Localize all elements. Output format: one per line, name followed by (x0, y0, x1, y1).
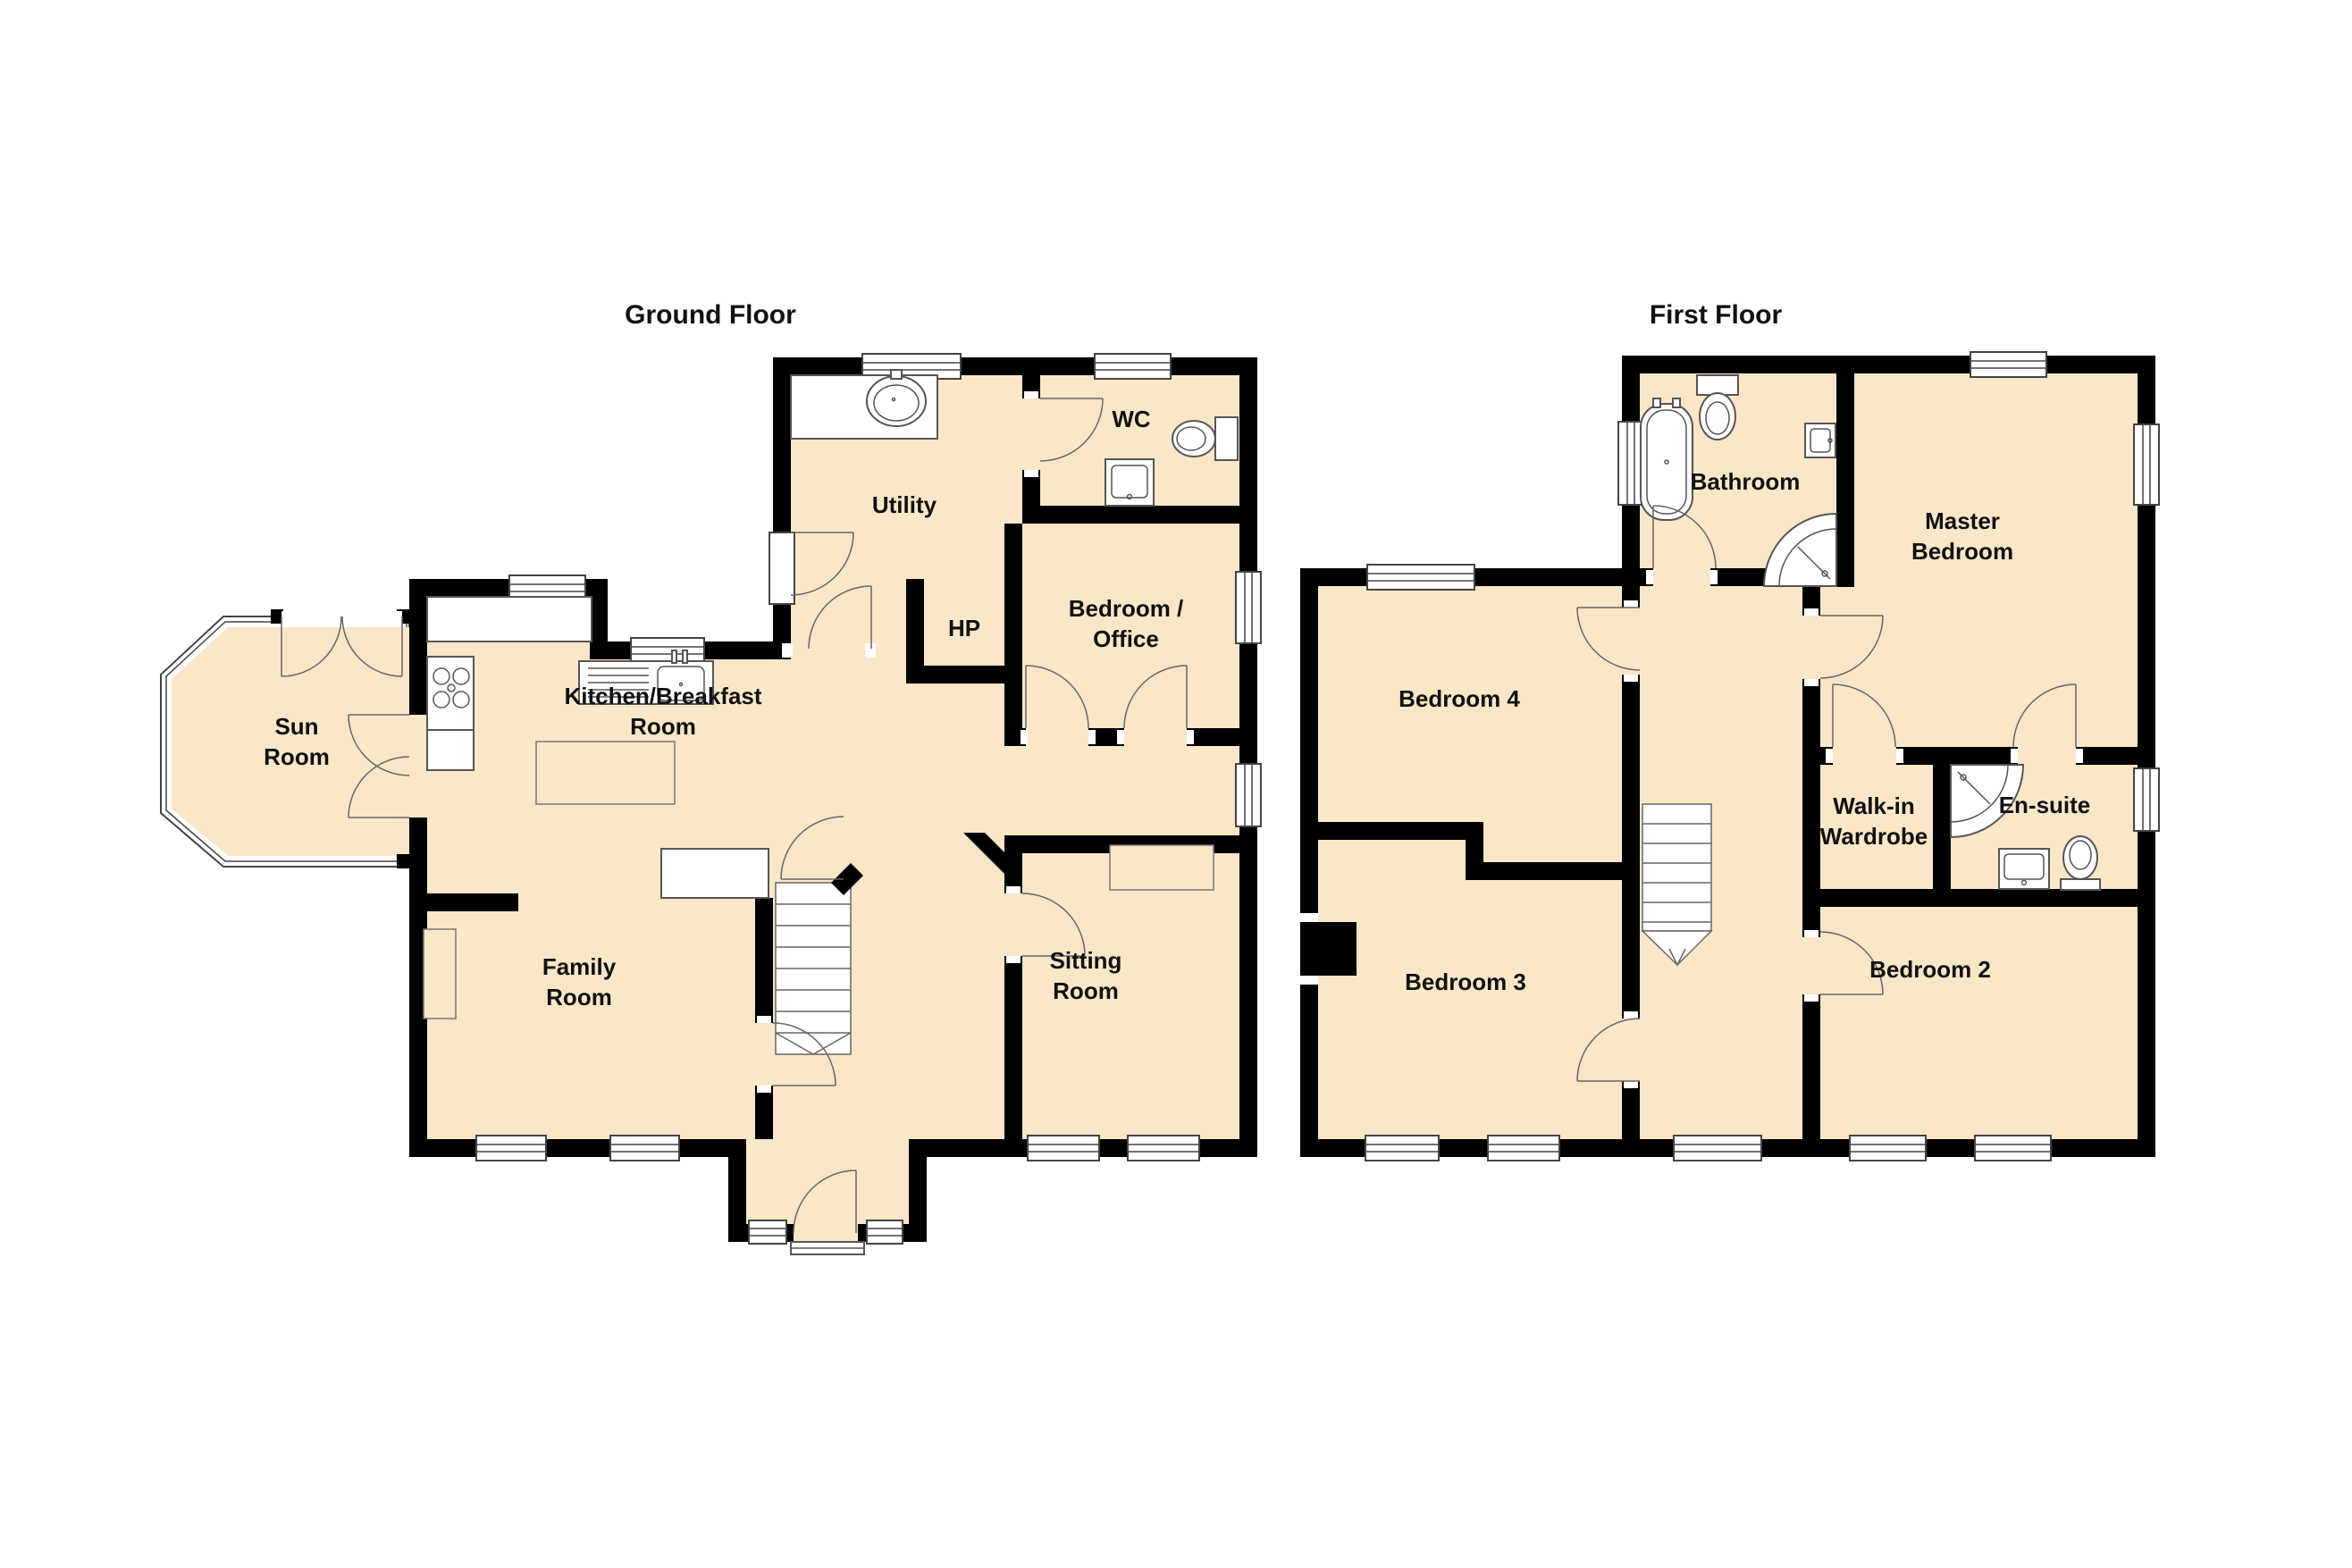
kitchen-peninsula (661, 849, 769, 898)
sitting-room-label: Room (1053, 977, 1119, 1004)
window (1975, 1136, 2051, 1161)
family-room-label: Room (546, 984, 612, 1010)
fireplace (1110, 845, 1214, 890)
kitchen-island (536, 742, 675, 804)
chimney-breast (424, 929, 456, 1019)
floorplan-page: Ground Floor (0, 0, 2352, 1568)
chimney-breast (1300, 913, 1357, 985)
walk-in-wardrobe-label: Wardrobe (1820, 823, 1928, 850)
en-suite-label: En-suite (1999, 792, 2091, 818)
en-suite-toilet-icon (2061, 836, 2100, 890)
front-door-step (791, 1242, 864, 1254)
window (1367, 565, 1474, 590)
kitchen-counter (427, 597, 592, 641)
wc-label: WC (1112, 406, 1151, 432)
window (2134, 768, 2159, 831)
master-bedroom-label: Master (1925, 507, 2000, 534)
bathtub-icon (1641, 398, 1693, 520)
en-suite-basin-icon (1999, 849, 2049, 889)
window (749, 1220, 786, 1244)
wc-toilet-icon (1172, 417, 1238, 460)
master-bedroom-label: Bedroom (1911, 538, 2013, 565)
window (1095, 354, 1171, 379)
window (1128, 1136, 1199, 1161)
floor-plan-image: Ground Floor (0, 0, 2352, 1568)
staircase (1642, 804, 1711, 965)
family-room-label: Family (542, 953, 617, 980)
window (1236, 572, 1261, 643)
wash-basin-icon (1805, 423, 1835, 457)
window (1028, 1136, 1099, 1161)
staircase (776, 883, 851, 1054)
wc-basin-icon (1105, 459, 1154, 506)
utility-label: Utility (872, 491, 937, 518)
window (476, 1136, 546, 1161)
window (1236, 764, 1261, 826)
bedroom-3-label: Bedroom 3 (1405, 968, 1526, 995)
bedroom-4-label: Bedroom 4 (1399, 685, 1520, 712)
window (1970, 352, 2046, 377)
bathroom-label: Bathroom (1691, 468, 1801, 495)
kitchen-label: Room (630, 713, 696, 740)
sun-room-label: Room (264, 743, 330, 770)
window (1488, 1136, 1559, 1161)
sun-room-label: Sun (274, 713, 318, 740)
first-floor-plan: First Floor (1300, 300, 2159, 1161)
bedroom-office-label: Bedroom / (1069, 595, 1184, 622)
window (610, 1136, 679, 1161)
window (2134, 424, 2159, 505)
window (1618, 422, 1643, 505)
side-door-frame (769, 532, 794, 604)
sitting-room-label: Sitting (1050, 947, 1122, 974)
window (1850, 1136, 1926, 1161)
ground-floor-title: Ground Floor (625, 300, 796, 330)
window (1674, 1136, 1761, 1161)
ground-floor-plan: Ground Floor (161, 300, 1261, 1254)
walk-in-wardrobe-label: Walk-in (1833, 792, 1914, 819)
hp-label: HP (948, 615, 980, 641)
window (867, 1220, 903, 1244)
toilet-icon (1697, 375, 1738, 440)
first-floor-title: First Floor (1650, 300, 1783, 330)
window (1365, 1136, 1439, 1161)
stove-hob-icon (427, 657, 474, 770)
bedroom-2-label: Bedroom 2 (1869, 956, 1991, 983)
bedroom-office-label: Office (1093, 625, 1159, 652)
kitchen-label: Kitchen/Breakfast (564, 683, 761, 709)
window (631, 638, 704, 663)
